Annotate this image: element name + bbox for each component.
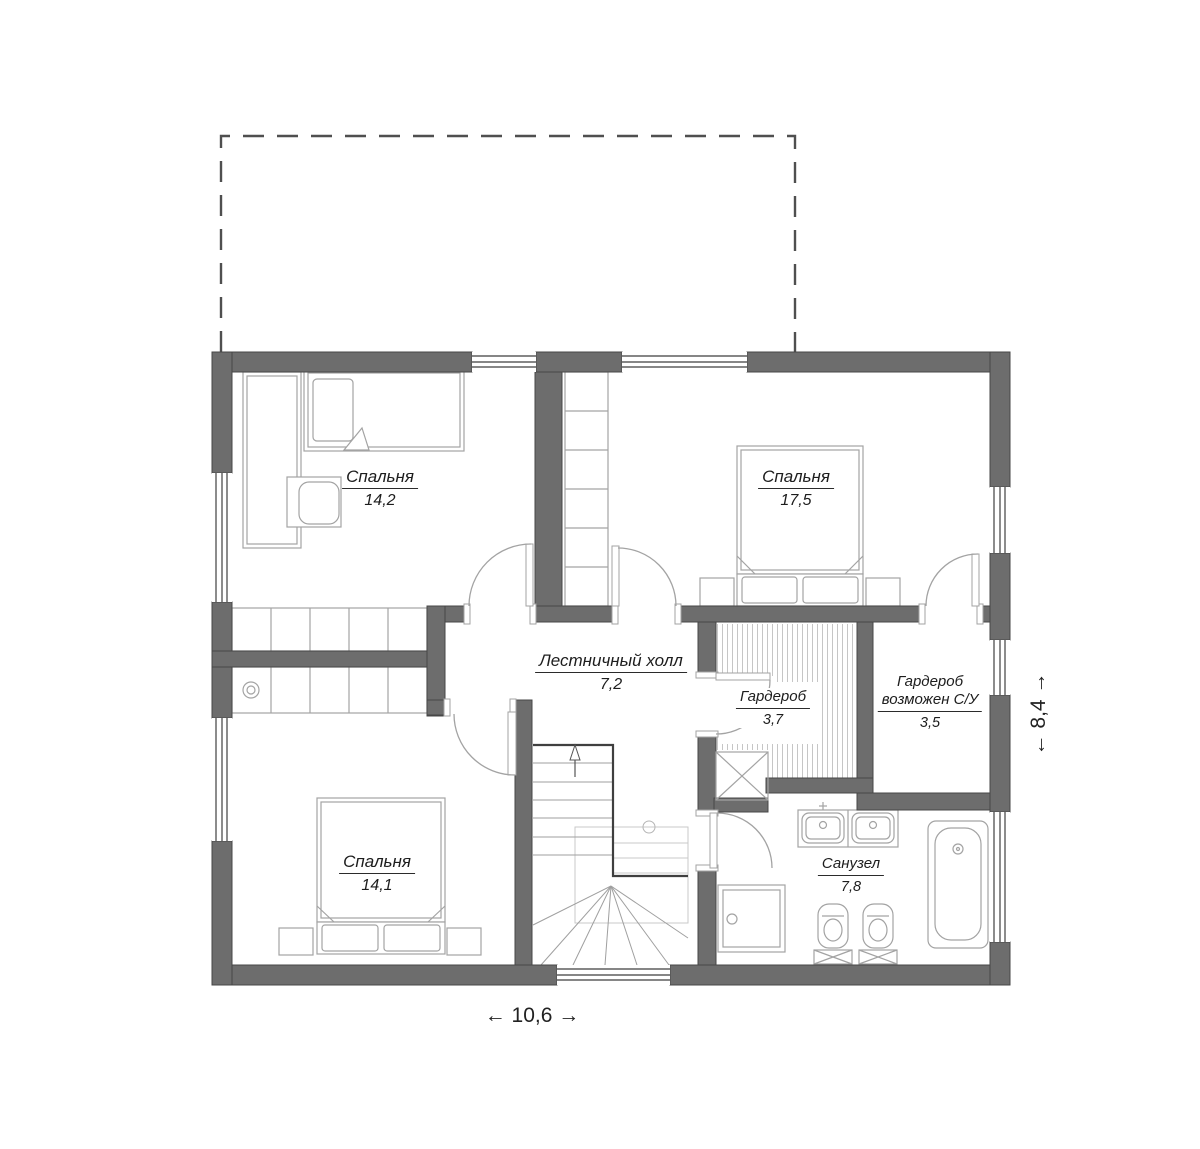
window <box>990 640 1010 695</box>
door-bathroom <box>696 810 772 871</box>
room-name: Гардероб <box>736 689 810 709</box>
window <box>212 473 232 602</box>
nightstand <box>279 928 313 955</box>
room-area: 7,2 <box>535 673 687 694</box>
floor-plan-page: Спальня 14,2 Спальня 17,5 Спальня 14,1 Л… <box>0 0 1200 1149</box>
room-name: Спальня <box>758 467 834 489</box>
dashed-outline <box>221 136 795 352</box>
room-label-bedroom-top-right: Спальня 17,5 <box>758 467 834 510</box>
window <box>472 352 536 372</box>
room-area: 14,1 <box>339 874 415 895</box>
closet-row-bottom <box>232 667 427 713</box>
room-name: Гардероб <box>878 674 982 691</box>
door-bedroom-bottom-left <box>444 699 516 775</box>
dimension-width: ← 10,6 → <box>485 1004 580 1028</box>
door-bedroom-top-left <box>464 544 536 624</box>
closet-row-top <box>232 608 427 651</box>
stair-winder-rays <box>533 886 688 965</box>
room-area: 3,7 <box>736 709 810 728</box>
window <box>212 718 232 841</box>
stair-flight-boundary <box>533 745 688 876</box>
window <box>990 812 1010 942</box>
shower <box>718 885 785 952</box>
room-area: 14,2 <box>342 489 418 510</box>
room-label-bathroom: Санузел 7,8 <box>818 855 884 895</box>
room-area: 3,5 <box>878 712 982 731</box>
nightstand <box>700 578 734 606</box>
door-wardrobe-su <box>919 554 983 624</box>
stair-treads-upper <box>533 763 613 855</box>
room-name-line2: возможен С/У <box>878 692 982 712</box>
room-label-bedroom-bottom-left: Спальня 14,1 <box>339 852 415 895</box>
toilet <box>859 904 897 964</box>
hall-shelf-unit <box>565 372 608 606</box>
room-label-wardrobe: Гардероб 3,7 <box>736 688 810 728</box>
window <box>557 965 670 985</box>
floor-plan-drawing <box>0 0 1200 1149</box>
room-name: Санузел <box>818 856 884 876</box>
staircase <box>533 745 688 965</box>
single-bed <box>304 369 464 451</box>
stair-lower-flight <box>613 821 688 876</box>
room-area: 17,5 <box>758 489 834 510</box>
room-label-bedroom-top-left: Спальня 14,2 <box>342 467 418 510</box>
door-bedroom-top-right <box>612 546 681 624</box>
nightstand <box>447 928 481 955</box>
stair-direction-arrow <box>570 745 580 777</box>
chair <box>299 482 339 524</box>
room-name: Лестничный холл <box>535 651 687 673</box>
room-area: 7,8 <box>818 876 884 895</box>
bathtub <box>928 821 988 948</box>
room-name: Спальня <box>342 467 418 489</box>
nightstand <box>866 578 900 606</box>
room-label-stair-hall: Лестничный холл 7,2 <box>535 651 687 694</box>
window <box>622 352 747 372</box>
room-name: Спальня <box>339 852 415 874</box>
window <box>990 487 1010 553</box>
toilet <box>814 904 852 964</box>
room-label-wardrobe-possible-su: Гардероб возможен С/У 3,5 <box>878 674 982 731</box>
dimension-height: ← 8,4 → <box>1027 673 1051 756</box>
